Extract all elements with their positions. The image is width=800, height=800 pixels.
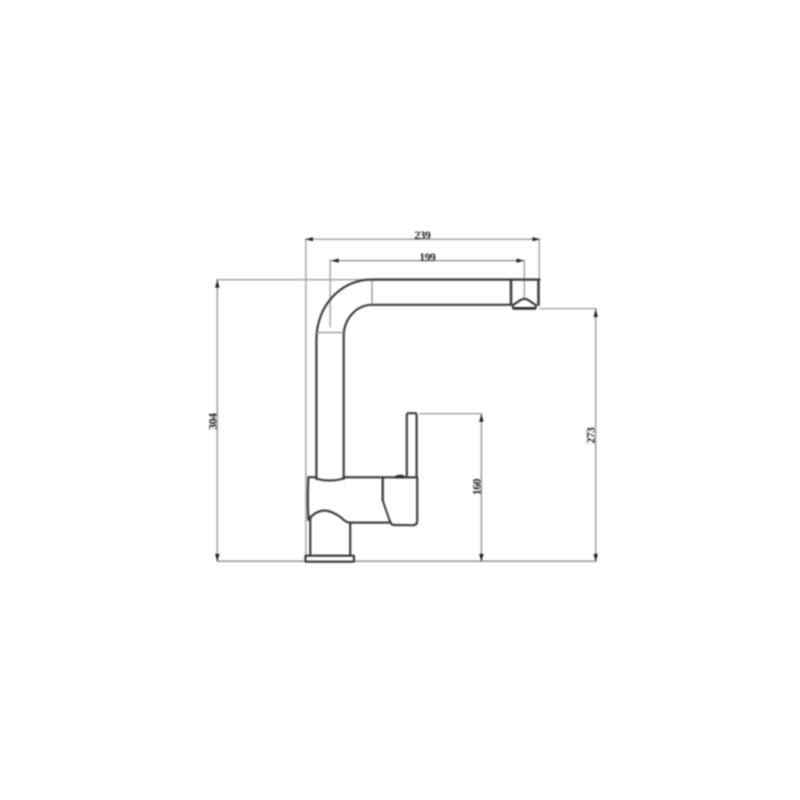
svg-text:160: 160 [471,478,484,495]
svg-text:304: 304 [206,413,219,430]
svg-text:273: 273 [585,427,598,444]
svg-text:199: 199 [419,251,436,264]
svg-text:239: 239 [414,229,431,242]
